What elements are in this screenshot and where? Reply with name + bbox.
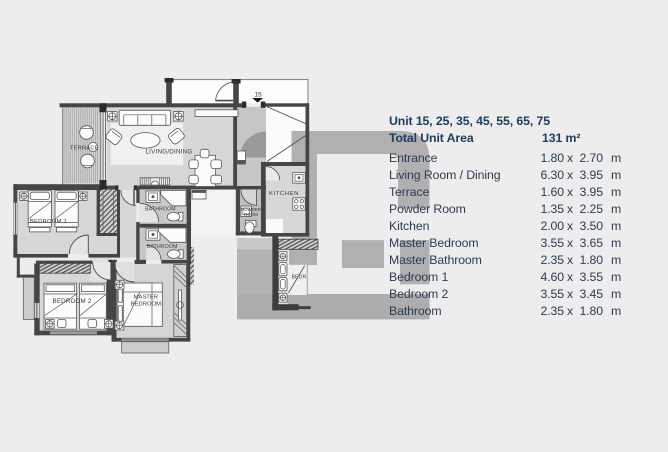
svg-text:BEDROOM 1: BEDROOM 1 (30, 219, 67, 225)
svg-text:TERRACE: TERRACE (70, 146, 99, 152)
svg-text:BEDROOM 2: BEDROOM 2 (53, 298, 92, 305)
svg-text:BATHROOM: BATHROOM (145, 207, 176, 213)
svg-text:MASTER: MASTER (134, 294, 159, 300)
svg-text:BEDROOM: BEDROOM (131, 301, 162, 307)
svg-text:15: 15 (254, 91, 262, 98)
svg-text:KITCHEN: KITCHEN (269, 191, 299, 197)
svg-text:ROOM: ROOM (244, 212, 258, 217)
svg-text:LIVING/DINING: LIVING/DINING (145, 149, 192, 156)
svg-text:BATHROOM: BATHROOM (147, 244, 178, 250)
svg-text:BEDR: BEDR (292, 274, 307, 280)
